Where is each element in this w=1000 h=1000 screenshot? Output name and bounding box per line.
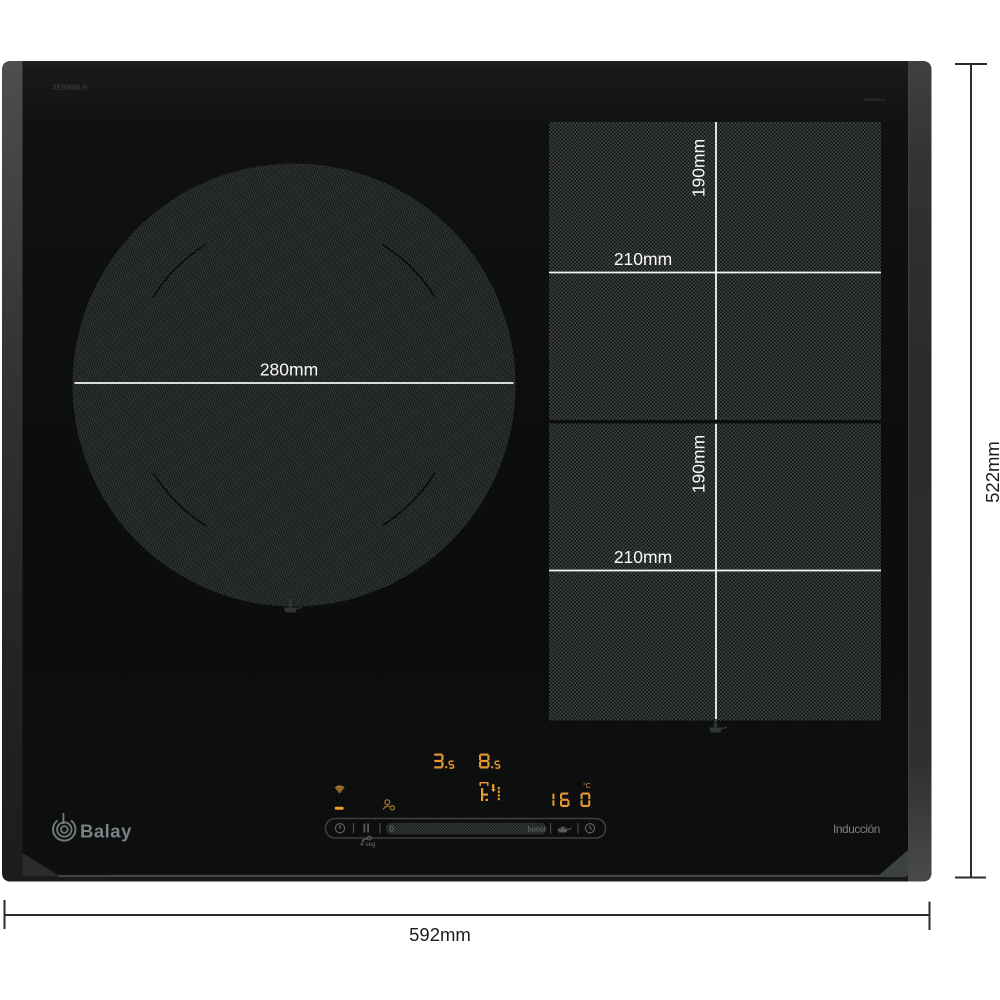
svg-text:190mm: 190mm — [689, 139, 709, 197]
svg-text:522mm: 522mm — [982, 441, 1000, 503]
svg-text:°C: °C — [583, 782, 591, 790]
svg-text:3EB969LH: 3EB969LH — [53, 85, 88, 92]
svg-text:4 seg: 4 seg — [360, 841, 376, 848]
svg-text:Inducción: Inducción — [833, 822, 880, 836]
svg-text:3EB969LH: 3EB969LH — [863, 97, 885, 102]
svg-text:boost: boost — [528, 825, 547, 834]
svg-text:190mm: 190mm — [689, 435, 709, 493]
svg-text:Balay: Balay — [80, 821, 132, 842]
svg-text:280mm: 280mm — [260, 360, 318, 380]
svg-text:210mm: 210mm — [614, 547, 672, 567]
svg-text:210mm: 210mm — [614, 249, 672, 269]
svg-text:0: 0 — [390, 825, 395, 834]
svg-text:592mm: 592mm — [409, 924, 471, 945]
